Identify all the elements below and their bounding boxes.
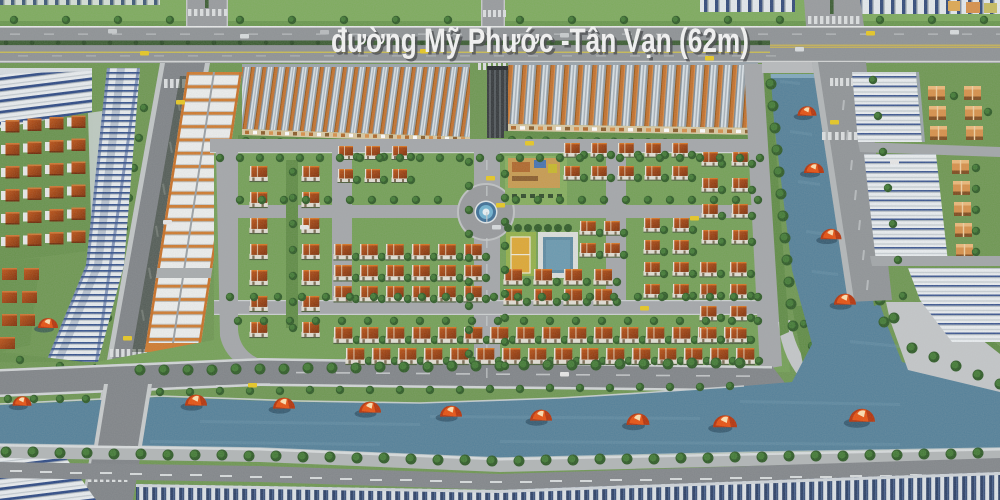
svg-text:đường Mỹ Phước -Tân Vạn (62m): đường Mỹ Phước -Tân Vạn (62m) xyxy=(331,22,749,60)
